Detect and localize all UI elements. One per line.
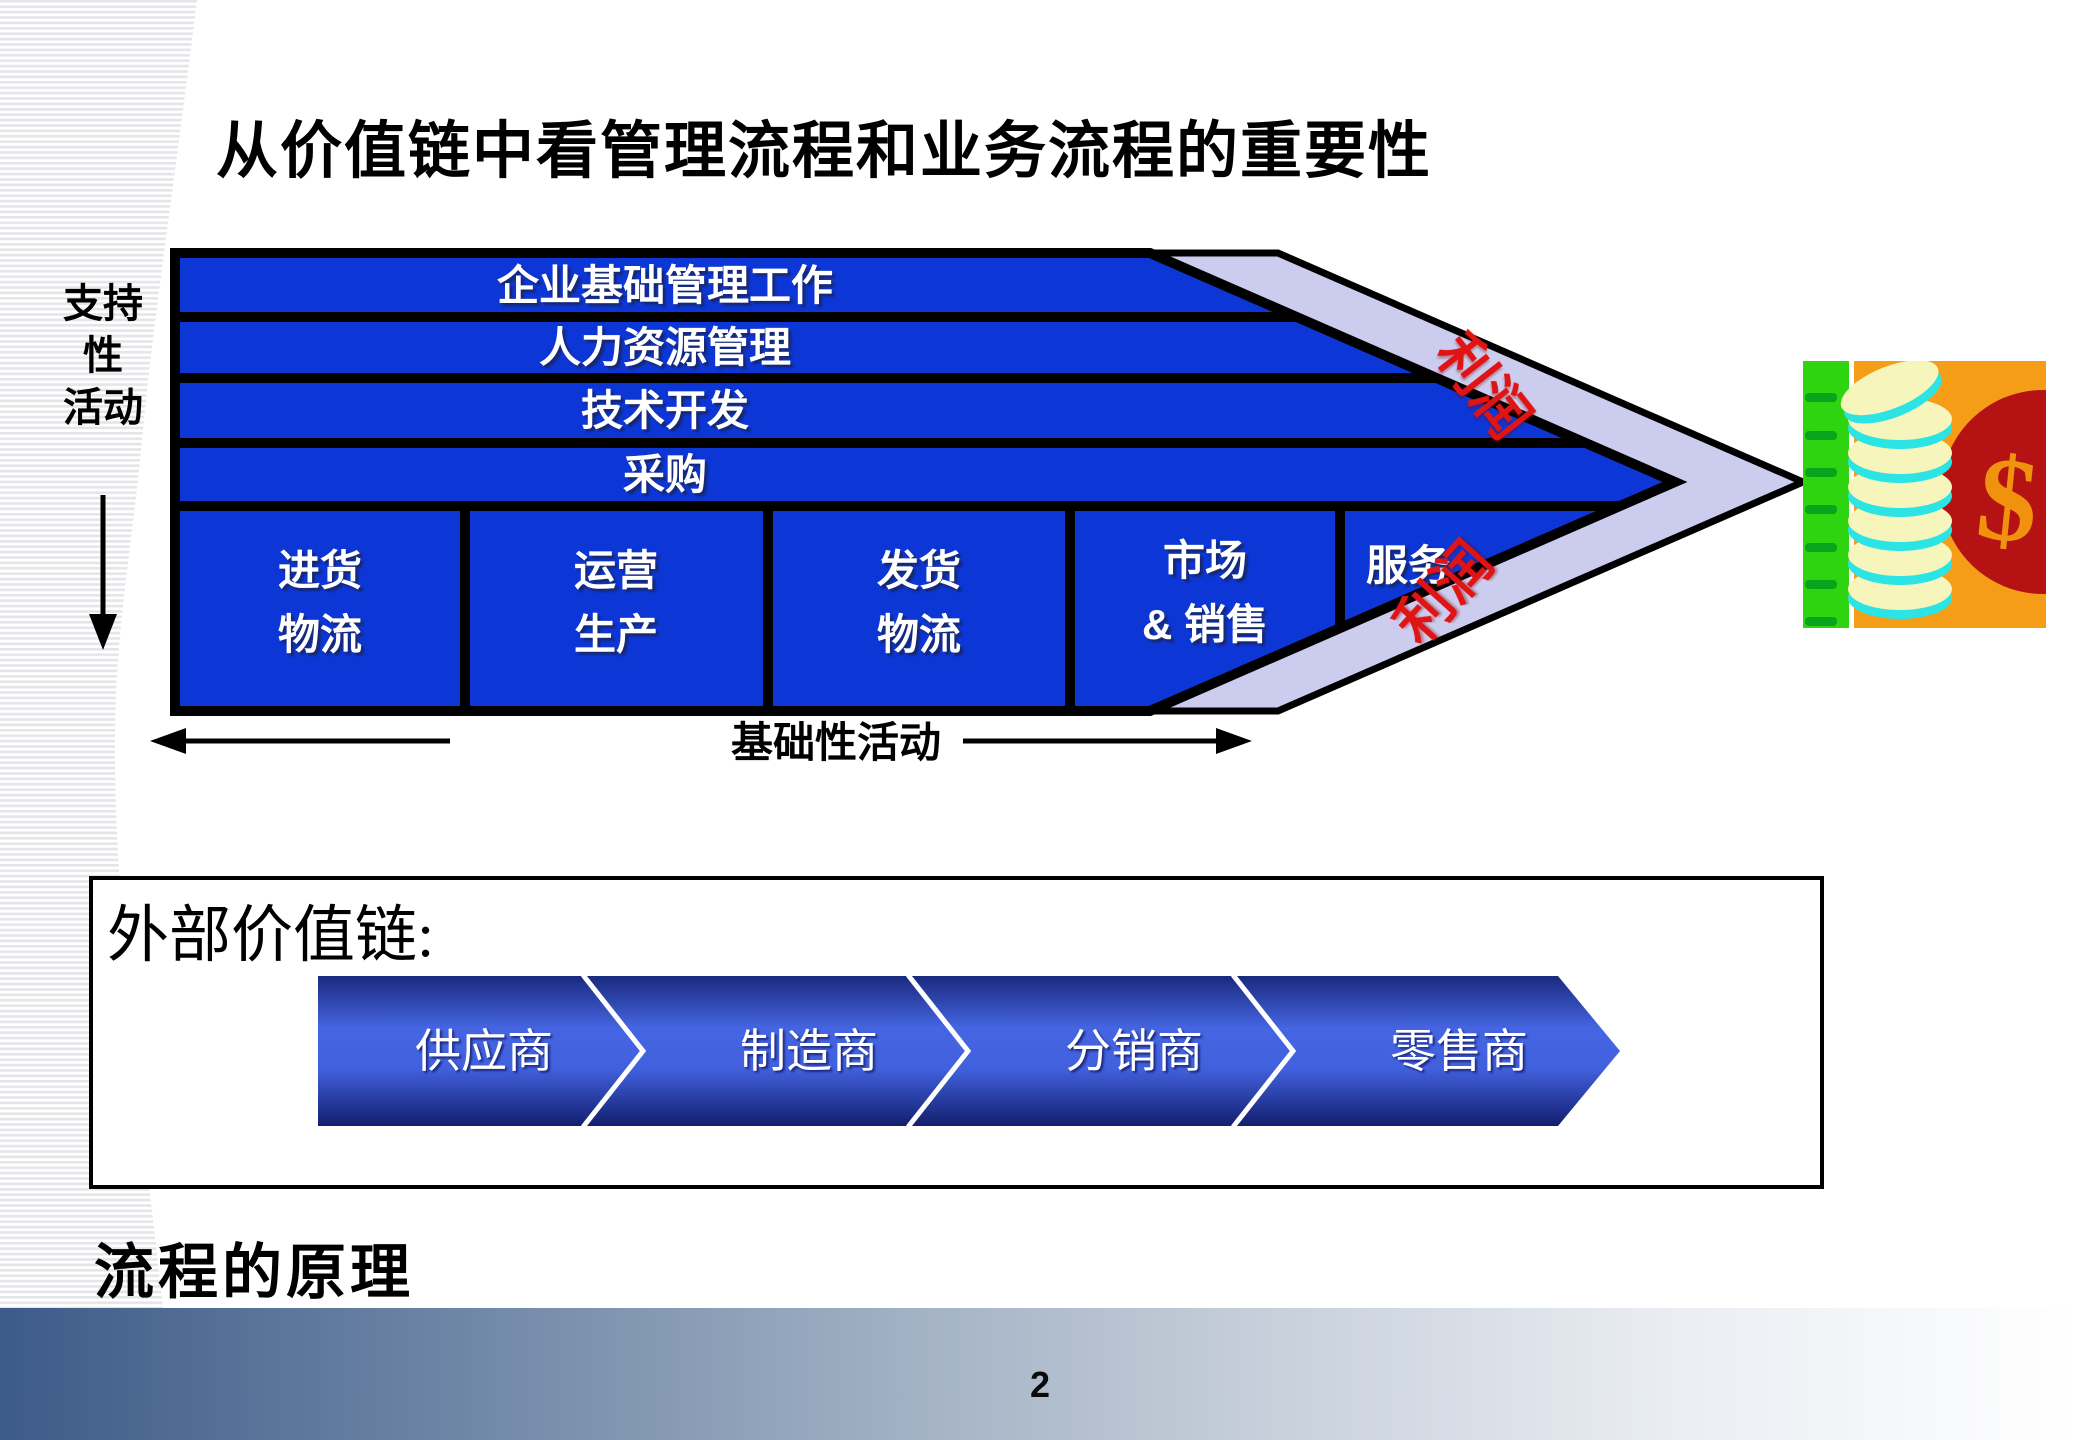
slide-title: 从价值链中看管理流程和业务流程的重要性 xyxy=(216,100,1432,190)
stage-supplier: 供应商 xyxy=(415,1026,553,1077)
stage-manufacturer: 制造商 xyxy=(740,1026,878,1077)
support-axis-line2: 性 xyxy=(28,330,178,382)
slide-canvas: 企业基础管理工作 人力资源管理 技术开发 采购 进货 物流 运营 生产 发货 物… xyxy=(0,0,2080,1440)
support-activity-procurement: 采购 xyxy=(623,451,707,498)
primary-inbound-logistics-line1: 进货 xyxy=(278,547,362,594)
support-axis-label: 支持 性 活动 xyxy=(28,278,178,434)
external-chain-stages: 供应商 制造商 分销商 零售商 xyxy=(318,975,1628,1127)
support-activity-infrastructure: 企业基础管理工作 xyxy=(497,262,833,309)
footer-heading: 流程的原理 xyxy=(94,1224,414,1311)
page-number: 2 xyxy=(0,1364,2080,1406)
money-clipart: $ xyxy=(1803,349,2080,628)
primary-operations-line2: 生产 xyxy=(574,611,658,658)
primary-axis-arrows xyxy=(150,728,1252,754)
primary-inbound-logistics-line2: 物流 xyxy=(278,611,362,658)
support-axis-line1: 支持 xyxy=(28,278,178,330)
primary-outbound-logistics-line1: 发货 xyxy=(877,547,961,594)
primary-marketing-line2: & 销售 xyxy=(1142,601,1268,648)
support-axis-line3: 活动 xyxy=(28,382,178,434)
external-value-chain-box: 外部价值链: 供应商 制造商 分销商 零售商 xyxy=(89,876,1824,1189)
external-chain-heading: 外部价值链: xyxy=(107,884,434,974)
support-activity-technology: 技术开发 xyxy=(581,387,749,434)
stage-distributor: 分销商 xyxy=(1065,1026,1203,1077)
primary-operations-line1: 运营 xyxy=(574,547,658,594)
stage-retailer: 零售商 xyxy=(1390,1026,1528,1077)
footer-bar: 2 xyxy=(0,1308,2080,1440)
support-activity-hr: 人力资源管理 xyxy=(539,324,791,371)
primary-outbound-logistics-line2: 物流 xyxy=(877,611,961,658)
primary-axis-label: 基础性活动 xyxy=(731,719,941,766)
primary-marketing-line1: 市场 xyxy=(1163,537,1247,584)
